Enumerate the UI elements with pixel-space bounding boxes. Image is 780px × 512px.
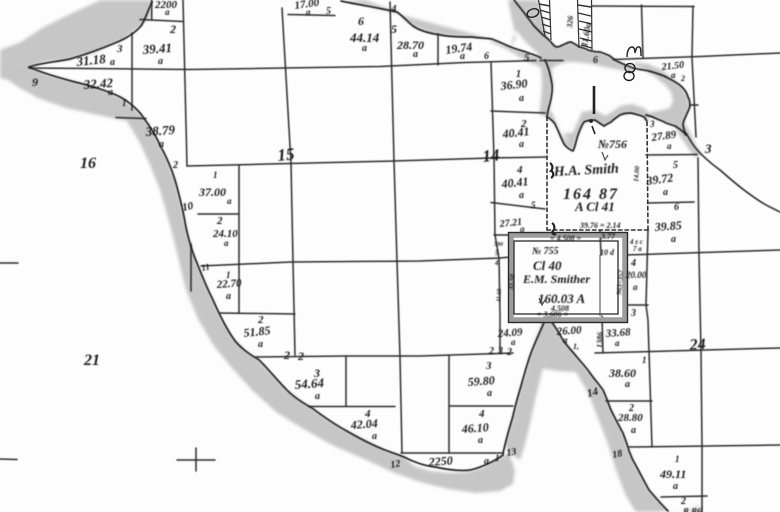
svg-text:14: 14: [481, 145, 500, 166]
svg-text:a: a: [667, 141, 672, 151]
svg-text:a: a: [520, 224, 525, 234]
svg-text:a: a: [258, 339, 263, 350]
svg-text:A Cl 41: A Cl 41: [574, 199, 615, 214]
svg-text:E.M. Smither: E.M. Smither: [522, 272, 590, 286]
svg-text:2: 2: [283, 348, 290, 362]
svg-text:a: a: [633, 282, 638, 292]
svg-text:4: 4: [630, 258, 636, 269]
svg-text:a: a: [519, 190, 524, 201]
svg-text:4: 4: [390, 3, 397, 15]
svg-text:a: a: [315, 391, 320, 402]
svg-text:21: 21: [83, 352, 100, 369]
svg-text:6: 6: [674, 202, 679, 213]
svg-text:2250: 2250: [427, 453, 453, 469]
svg-text:№ 755: № 755: [531, 246, 559, 257]
svg-text:9: 9: [32, 75, 38, 89]
svg-text:a: a: [673, 481, 678, 492]
svg-text:3: 3: [485, 360, 492, 372]
svg-text:39.85: 39.85: [653, 218, 682, 234]
svg-text:22.70: 22.70: [215, 277, 242, 291]
svg-text:16: 16: [80, 155, 96, 172]
svg-text:37.00: 37.00: [198, 185, 226, 199]
svg-text:2: 2: [506, 347, 512, 358]
svg-text:10 d: 10 d: [600, 248, 615, 257]
svg-text:2: 2: [297, 349, 304, 363]
svg-text:a: a: [484, 456, 489, 467]
svg-text:1: 1: [495, 453, 500, 463]
svg-text:a: a: [413, 49, 418, 60]
svg-text:a: a: [511, 337, 516, 347]
svg-text:2: 2: [169, 22, 176, 36]
svg-text:326: 326: [565, 15, 575, 29]
svg-text:20.00: 20.00: [625, 270, 647, 280]
svg-text:11: 11: [200, 261, 210, 273]
svg-text:a: a: [159, 139, 164, 150]
svg-text:2: 2: [172, 160, 178, 171]
svg-text:39.41: 39.41: [141, 40, 172, 57]
svg-text:27.21: 27.21: [498, 217, 523, 230]
svg-text:13: 13: [506, 446, 518, 459]
svg-text:2: 2: [216, 215, 223, 227]
svg-text:H.A. Smith: H.A. Smith: [552, 162, 619, 180]
svg-text:54.64: 54.64: [294, 375, 325, 392]
svg-text:46.10: 46.10: [460, 420, 489, 436]
svg-text:10: 10: [181, 200, 195, 214]
svg-text:14.00: 14.00: [632, 165, 641, 182]
svg-text:39.76 = 2.14: 39.76 = 2.14: [579, 221, 621, 230]
svg-text:5: 5: [531, 200, 536, 210]
svg-text:a: a: [110, 57, 115, 68]
svg-text:3.77: 3.77: [600, 232, 616, 241]
svg-text:42.04: 42.04: [349, 416, 378, 432]
svg-text:8.86: 8.86: [683, 506, 703, 512]
svg-text:5: 5: [524, 52, 530, 64]
svg-text:a: a: [372, 431, 377, 442]
svg-text:31.50: 31.50: [507, 273, 516, 291]
svg-text:a: a: [226, 291, 231, 302]
svg-text:a: a: [671, 234, 676, 245]
svg-text:a: a: [478, 435, 483, 446]
svg-text:= 4.508 =: = 4.508 =: [550, 234, 582, 243]
svg-text:3: 3: [116, 43, 123, 55]
svg-text:38.60: 38.60: [608, 366, 636, 380]
svg-text:1: 1: [122, 98, 127, 108]
svg-text:5: 5: [673, 160, 678, 171]
svg-text:№756: №756: [597, 137, 627, 151]
svg-text:a: a: [663, 187, 668, 198]
svg-text:a: a: [108, 87, 113, 98]
svg-text:5: 5: [391, 22, 397, 36]
svg-text:38.79: 38.79: [144, 122, 176, 139]
svg-text:7 a: 7 a: [633, 245, 642, 253]
svg-text:2: 2: [488, 346, 494, 357]
svg-text:a: a: [519, 139, 524, 150]
svg-text:a: a: [487, 388, 492, 399]
svg-text:11.60a: 11.60a: [579, 21, 593, 47]
svg-text:5: 5: [495, 249, 499, 257]
svg-text:51.85: 51.85: [243, 323, 271, 340]
svg-text:a: a: [227, 196, 232, 206]
svg-text:1: 1: [213, 170, 218, 180]
svg-text:Cl 40: Cl 40: [533, 258, 562, 273]
svg-text:28.80: 28.80: [617, 412, 643, 424]
svg-text:49.11: 49.11: [659, 467, 686, 481]
svg-text:6: 6: [484, 51, 489, 62]
svg-text:1,: 1,: [573, 342, 579, 351]
svg-text:4: 4: [478, 408, 485, 420]
svg-text:31.18: 31.18: [75, 51, 107, 69]
svg-text:59.80: 59.80: [467, 373, 495, 389]
svg-text:40.41: 40.41: [500, 174, 529, 191]
svg-text:3: 3: [649, 119, 655, 129]
svg-text:a: a: [615, 338, 620, 348]
svg-text:a: a: [563, 335, 568, 345]
svg-text:6: 6: [358, 14, 364, 28]
svg-text:= 3.606 =: = 3.606 =: [537, 310, 569, 319]
svg-text:28.70: 28.70: [396, 38, 424, 52]
svg-text:a: a: [306, 7, 311, 17]
svg-text:36.90: 36.90: [499, 76, 528, 93]
svg-text:1: 1: [675, 454, 680, 464]
svg-text:a: a: [158, 56, 163, 67]
svg-text:5: 5: [326, 6, 331, 17]
svg-text:11.68: 11.68: [496, 289, 503, 303]
svg-text:26.00: 26.00: [555, 324, 582, 338]
svg-text:a: a: [460, 51, 465, 62]
svg-text:3: 3: [630, 308, 636, 319]
svg-text:a: a: [625, 379, 630, 390]
svg-text:24: 24: [688, 336, 706, 354]
svg-text:a: a: [631, 425, 636, 436]
svg-text:24.09: 24.09: [496, 326, 523, 340]
svg-text:19.74: 19.74: [444, 39, 473, 57]
svg-text:a: a: [362, 43, 367, 54]
svg-text:1: 1: [642, 355, 647, 365]
svg-text:4: 4: [494, 259, 499, 267]
svg-text:a: a: [519, 93, 524, 104]
svg-text:1386: 1386: [595, 332, 605, 348]
svg-text:3: 3: [704, 141, 712, 156]
svg-text:a: a: [165, 7, 170, 17]
svg-text:15: 15: [276, 144, 295, 165]
svg-text:a: a: [224, 238, 229, 248]
svg-text:3: 3: [497, 346, 503, 357]
svg-text:12: 12: [390, 458, 402, 471]
svg-text:40.41: 40.41: [501, 124, 530, 141]
svg-text:a: a: [671, 70, 676, 80]
svg-text:590: 590: [494, 242, 503, 248]
svg-text:39.72: 39.72: [644, 170, 674, 188]
svg-text:2: 2: [680, 74, 685, 83]
svg-text:6: 6: [593, 55, 598, 66]
svg-text:27.89: 27.89: [650, 129, 678, 145]
